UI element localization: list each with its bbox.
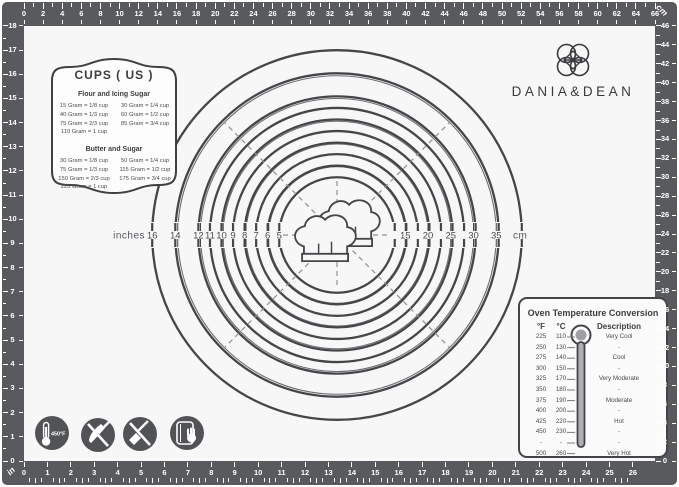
ruler-tick xyxy=(19,74,24,75)
description-value: Hot xyxy=(578,417,660,427)
ruler-tick xyxy=(263,3,264,7)
ruler-tick xyxy=(656,338,660,339)
cups-line: 110 Gram = 1 cup xyxy=(53,128,115,137)
ruler-tick xyxy=(3,352,6,353)
ruler-tick xyxy=(111,478,112,483)
ruler-tick xyxy=(205,478,206,483)
ruler-tick xyxy=(672,442,676,443)
ruler-tick xyxy=(621,478,622,484)
ruler-tick xyxy=(196,20,197,24)
ruler-tick xyxy=(656,432,660,433)
ruler-tick xyxy=(463,20,464,24)
ruler-label: 24 xyxy=(245,10,261,18)
ruler-label: 40 xyxy=(659,79,672,87)
ruler-tick xyxy=(482,20,483,24)
ruler-tick xyxy=(451,478,452,483)
ruler-label: 17 xyxy=(414,469,430,477)
ruler-tick xyxy=(574,478,575,484)
ruler-label: 42 xyxy=(659,60,672,68)
ruler-tick xyxy=(672,158,676,159)
ruler-tick xyxy=(62,20,63,24)
cups-line: 115 Gram = 1/2 cup xyxy=(114,166,176,175)
ruler-label: 15 xyxy=(7,94,18,102)
ruler-tick xyxy=(157,20,158,24)
ruler-tick xyxy=(19,98,24,99)
ruler-tick xyxy=(19,146,24,147)
ruler-label: 14 xyxy=(344,469,360,477)
ruler-label: 12 xyxy=(297,469,313,477)
description-value: Very Cool xyxy=(578,332,660,342)
ruler-label: 36 xyxy=(360,10,376,18)
ruler-tick xyxy=(656,205,660,206)
ruler-tick xyxy=(656,54,660,55)
ruler-label: 14 xyxy=(659,325,672,333)
ruler-tick xyxy=(81,20,82,24)
ruler-label: 12 xyxy=(659,344,672,352)
ruler-tick xyxy=(672,385,676,386)
ruler-label: 21 xyxy=(508,469,524,477)
ruler-label: 16 xyxy=(391,469,407,477)
ruler-tick xyxy=(176,478,177,484)
ruler-tick xyxy=(656,319,660,320)
ruler-tick xyxy=(252,478,253,483)
ruler-tick xyxy=(228,478,229,483)
ruler-label: 50 xyxy=(494,10,510,18)
cups-line: 75 Gram = 2/3 cup xyxy=(53,120,115,129)
ruler-tick xyxy=(19,461,24,462)
ruler-label: 32 xyxy=(322,10,338,18)
brand-name: DANIA&DEAN xyxy=(473,84,673,99)
ruler-tick xyxy=(19,436,24,437)
cups-line: 60 Gram = 1/2 cup xyxy=(114,111,176,120)
ruler-tick xyxy=(357,478,358,483)
ruler-tick xyxy=(33,3,34,7)
ruler-tick xyxy=(258,462,259,467)
ruler-tick xyxy=(457,478,458,484)
ruler-tick xyxy=(186,3,187,7)
cups-list: 30 Gram = 1/8 cup75 Gram = 1/3 cup150 Gr… xyxy=(53,157,115,192)
ruler-label: 1 xyxy=(39,469,55,477)
cups-line: 30 Gram = 1/8 cup xyxy=(53,157,115,166)
ruler-label: 20 xyxy=(659,268,672,276)
ruler-tick xyxy=(3,376,6,377)
ruler-tick xyxy=(70,462,71,467)
ruler-tick xyxy=(656,224,660,225)
ruler-tick xyxy=(3,158,6,159)
ruler-tick xyxy=(480,478,481,484)
ruler-label: 26 xyxy=(625,469,641,477)
description-value: Cool xyxy=(578,353,660,363)
description-value: - xyxy=(578,427,660,437)
celsius-value: 190 xyxy=(549,396,573,406)
ruler-tick xyxy=(672,44,676,45)
ruler-tick xyxy=(672,177,676,178)
ruler-tick xyxy=(656,356,660,357)
ruler-tick xyxy=(635,20,636,24)
ruler-tick xyxy=(672,234,676,235)
ruler-tick xyxy=(246,478,247,484)
ruler-label: 38 xyxy=(659,98,672,106)
ruler-label: 40 xyxy=(398,10,414,18)
ruler-tick xyxy=(299,478,300,483)
ruler-tick xyxy=(100,478,101,483)
ruler-tick xyxy=(243,3,244,7)
ruler-label: 0 xyxy=(7,457,18,465)
ruler-label: 64 xyxy=(628,10,644,18)
ruler-tick xyxy=(322,478,323,483)
celsius-value: 130 xyxy=(549,343,573,353)
ruler-tick xyxy=(672,139,676,140)
description-value: - xyxy=(578,343,660,353)
ruler-tick xyxy=(627,478,628,483)
pastry-mat-product-image: 1614121110987651520253035inchescm CUPS (… xyxy=(0,0,679,487)
ruler-tick xyxy=(672,271,676,272)
ruler-label: 44 xyxy=(659,41,672,49)
cups-line: 150 Gram = 2/3 cup xyxy=(53,175,115,184)
cm-diameter-label: 15 xyxy=(400,231,411,242)
brand-logo: DANIA&DEAN xyxy=(473,32,673,102)
ruler-label: 22 xyxy=(226,10,242,18)
ruler-tick xyxy=(19,122,24,123)
ruler-tick xyxy=(3,424,6,425)
ruler-tick xyxy=(215,20,216,24)
ruler-tick xyxy=(167,3,168,7)
ruler-label: 6 xyxy=(157,469,173,477)
ruler-label: 14 xyxy=(7,119,18,127)
ruler-tick xyxy=(3,38,6,39)
cups-title: CUPS ( US ) xyxy=(46,68,182,82)
ruler-label: 18 xyxy=(659,287,672,295)
cups-line: 175 Gram = 3/4 cup xyxy=(114,175,176,184)
celsius-value: 230 xyxy=(549,427,573,437)
ruler-tick xyxy=(310,478,311,483)
ruler-label: 30 xyxy=(659,173,672,181)
ruler-tick xyxy=(656,186,660,187)
ruler-tick xyxy=(253,20,254,24)
ruler-tick xyxy=(59,478,60,484)
ruler-tick xyxy=(123,478,124,483)
ruler-label: 32 xyxy=(659,154,672,162)
ruler-tick xyxy=(509,478,510,483)
ruler-label: 18 xyxy=(438,469,454,477)
ruler-tick xyxy=(656,413,660,414)
ruler-tick xyxy=(3,448,6,449)
ruler-tick xyxy=(439,478,440,483)
ruler-label: 42 xyxy=(418,10,434,18)
ruler-tick xyxy=(656,394,660,395)
ruler-tick xyxy=(349,20,350,24)
ruler-label: 56 xyxy=(551,10,567,18)
cups-conversion-box: CUPS ( US ) Flour and Icing Sugar 15 Gra… xyxy=(46,55,182,197)
ruler-label: 10 xyxy=(112,10,128,18)
ruler-tick xyxy=(94,462,95,467)
cups-line: 30 Gram = 1/4 cup xyxy=(114,102,176,111)
ruler-tick xyxy=(562,462,563,467)
ruler-tick xyxy=(556,478,557,483)
ruler-label: 54 xyxy=(532,10,548,18)
ruler-tick xyxy=(158,478,159,483)
ruler-tick xyxy=(3,279,6,280)
ruler-tick xyxy=(19,388,24,389)
ruler-tick xyxy=(269,478,270,484)
ruler-tick xyxy=(3,183,6,184)
ruler-tick xyxy=(351,462,352,467)
ruler-label: 28 xyxy=(284,10,300,18)
ruler-tick xyxy=(422,462,423,467)
ruler-tick xyxy=(320,3,321,7)
ruler-tick xyxy=(672,63,676,64)
ruler-tick xyxy=(3,110,6,111)
ruler-label: 22 xyxy=(531,469,547,477)
ruler-tick xyxy=(603,478,604,483)
ruler-tick xyxy=(511,3,512,7)
ruler-tick xyxy=(110,3,111,7)
ruler-tick xyxy=(375,462,376,467)
ruler-tick xyxy=(656,130,660,131)
ruler-tick xyxy=(76,478,77,483)
ruler-tick xyxy=(135,478,136,483)
ruler-label: 6 xyxy=(659,400,672,408)
ruler-label: 3 xyxy=(86,469,102,477)
celsius-value: 150 xyxy=(549,364,573,374)
ruler-label: 2 xyxy=(35,10,51,18)
ruler-tick xyxy=(655,20,656,24)
ruler-tick xyxy=(672,404,676,405)
cups-line: 50 Gram = 1/4 cup xyxy=(114,157,176,166)
celsius-value: 140 xyxy=(549,353,573,363)
ruler-tick xyxy=(609,462,610,467)
ruler-label: 8 xyxy=(7,264,18,272)
ruler-tick xyxy=(568,478,569,483)
ruler-tick xyxy=(368,20,369,24)
ruler-label: 46 xyxy=(659,22,672,30)
ruler-tick xyxy=(398,462,399,467)
celsius-value: 170 xyxy=(549,374,573,384)
ruler-tick xyxy=(444,20,445,24)
ruler-label: 5 xyxy=(133,469,149,477)
ruler-tick xyxy=(415,3,416,7)
ruler-tick xyxy=(427,478,428,483)
ruler-tick xyxy=(182,478,183,483)
ruler-tick xyxy=(264,478,265,483)
ruler-label: 46 xyxy=(456,10,472,18)
ruler-tick xyxy=(672,101,676,102)
ruler-tick xyxy=(19,195,24,196)
ruler-tick xyxy=(3,86,6,87)
ruler-label: 4 xyxy=(7,360,18,368)
ruler-tick xyxy=(293,478,294,484)
inch-diameter-label: 6 xyxy=(265,231,270,242)
ruler-label: 12 xyxy=(131,10,147,18)
ruler-tick xyxy=(387,20,388,24)
ruler-label: 7 xyxy=(7,288,18,296)
ruler-tick xyxy=(234,462,235,467)
ruler-tick xyxy=(3,231,6,232)
ruler-label: 4 xyxy=(659,419,672,427)
ruler-label: 11 xyxy=(7,191,18,199)
ruler-tick xyxy=(193,478,194,483)
ruler-tick xyxy=(615,478,616,483)
description-value: - xyxy=(578,385,660,395)
cups-line: 40 Gram = 1/3 cup xyxy=(53,111,115,120)
ruler-tick xyxy=(597,478,598,484)
ruler-tick xyxy=(224,3,225,7)
ruler-tick xyxy=(19,291,24,292)
ruler-tick xyxy=(656,243,660,244)
ruler-tick xyxy=(310,20,311,24)
ruler-tick xyxy=(117,462,118,467)
ruler-label: 20 xyxy=(207,10,223,18)
inch-diameter-label: 12 xyxy=(193,231,204,242)
ruler-tick xyxy=(597,20,598,24)
ruler-tick xyxy=(334,478,335,483)
ruler-tick xyxy=(539,462,540,467)
inch-diameter-label: 7 xyxy=(254,231,259,242)
ruler-tick xyxy=(3,62,6,63)
ruler-tick xyxy=(559,20,560,24)
ruler-label: 13 xyxy=(320,469,336,477)
ruler-tick xyxy=(29,478,30,483)
ruler-tick xyxy=(607,3,608,7)
ruler-tick xyxy=(53,478,54,483)
ruler-tick xyxy=(672,120,676,121)
no-knife-icon xyxy=(78,415,118,455)
celsius-value: - xyxy=(549,438,573,448)
ruler-tick xyxy=(435,3,436,7)
ruler-label: 1 xyxy=(7,433,18,441)
ruler-label: 0 xyxy=(16,10,32,18)
ruler-tick xyxy=(381,478,382,483)
cups-list: 50 Gram = 1/4 cup115 Gram = 1/2 cup175 G… xyxy=(114,157,176,183)
ruler-tick xyxy=(369,478,370,483)
mat-surface: 1614121110987651520253035inchescm CUPS (… xyxy=(24,26,655,461)
ruler-tick xyxy=(672,423,676,424)
ruler-label: 58 xyxy=(571,10,587,18)
ruler-tick xyxy=(43,20,44,24)
inch-diameter-label: 11 xyxy=(205,231,215,242)
ruler-tick xyxy=(19,340,24,341)
cups-list: 30 Gram = 1/4 cup60 Gram = 1/2 cup85 Gra… xyxy=(114,102,176,128)
ruler-tick xyxy=(504,478,505,484)
ruler-tick xyxy=(656,35,660,36)
ruler-tick xyxy=(626,3,627,7)
ruler-tick xyxy=(632,462,633,467)
ruler-label: 6 xyxy=(7,312,18,320)
ruler-label: 4 xyxy=(54,10,70,18)
ruler-tick xyxy=(90,3,91,7)
ruler-tick xyxy=(578,20,579,24)
wipe-clean-icon xyxy=(167,413,207,453)
ruler-tick xyxy=(146,478,147,483)
ruler-tick xyxy=(463,478,464,483)
ruler-tick xyxy=(340,478,341,484)
ruler-tick xyxy=(396,3,397,7)
description-value: - xyxy=(578,438,660,448)
ruler-label: 0 xyxy=(659,457,672,465)
ruler-tick xyxy=(129,3,130,7)
cm-unit-label: cm xyxy=(513,231,527,242)
ruler-tick xyxy=(492,3,493,7)
ruler-tick xyxy=(468,462,469,467)
ruler-tick xyxy=(502,20,503,24)
cm-diameter-label: 30 xyxy=(468,231,479,242)
ruler-tick xyxy=(19,170,24,171)
ruler-tick xyxy=(377,3,378,7)
ruler-tick xyxy=(656,262,660,263)
ruler-tick xyxy=(363,478,364,484)
ruler-tick xyxy=(217,478,218,483)
ruler-label: 16 xyxy=(169,10,185,18)
oven-temperature-box: Oven Temperature Conversion °F °C Descri… xyxy=(518,297,668,458)
ruler-tick xyxy=(19,267,24,268)
ruler-tick xyxy=(3,207,6,208)
ruler-label: 26 xyxy=(659,211,672,219)
ruler-tick xyxy=(586,462,587,467)
cups-list: 15 Gram = 1/8 cup40 Gram = 1/3 cup75 Gra… xyxy=(53,102,115,137)
ruler-tick xyxy=(19,219,24,220)
ruler-tick xyxy=(515,462,516,467)
inch-diameter-label: 14 xyxy=(170,231,181,242)
ruler-tick xyxy=(521,478,522,483)
ruler-tick xyxy=(138,20,139,24)
heat-resistant-icon: 450°F xyxy=(32,413,72,453)
ruler-tick xyxy=(406,20,407,24)
ruler-label: 4 xyxy=(110,469,126,477)
ruler-label: 22 xyxy=(659,249,672,257)
ruler-tick xyxy=(287,478,288,483)
ruler-tick xyxy=(425,20,426,24)
ruler-tick xyxy=(656,300,660,301)
ruler-tick xyxy=(205,3,206,7)
ruler-label: 9 xyxy=(7,239,18,247)
cups-line: 75 Gram = 1/3 cup xyxy=(53,166,115,175)
ruler-tick xyxy=(672,366,676,367)
cm-diameter-label: 25 xyxy=(445,231,456,242)
ruler-tick xyxy=(234,20,235,24)
celsius-value: 180 xyxy=(549,385,573,395)
ruler-tick xyxy=(645,3,646,7)
ruler-tick xyxy=(580,478,581,483)
ruler-tick xyxy=(41,478,42,483)
ruler-tick xyxy=(35,478,36,484)
ruler-tick xyxy=(88,478,89,483)
cm-diameter-label: 35 xyxy=(491,231,502,242)
ruler-label: 23 xyxy=(555,469,571,477)
ruler-tick xyxy=(3,134,6,135)
ruler-label: 0 xyxy=(16,469,32,477)
ruler-tick xyxy=(533,478,534,483)
ruler-tick xyxy=(100,20,101,24)
ruler-tick xyxy=(445,462,446,467)
ruler-label: 18 xyxy=(188,10,204,18)
ruler-tick xyxy=(24,20,25,24)
cm-diameter-label: 20 xyxy=(423,231,434,242)
ruler-label: 30 xyxy=(303,10,319,18)
ruler-tick xyxy=(19,315,24,316)
ruler-tick xyxy=(568,3,569,7)
ruler-tick xyxy=(656,148,660,149)
ruler-label: 8 xyxy=(659,381,672,389)
ruler-label: 11 xyxy=(274,469,290,477)
ruler-tick xyxy=(82,478,83,484)
ruler-label: 60 xyxy=(590,10,606,18)
ruler-label: 16 xyxy=(659,306,672,314)
inch-diameter-label: 9 xyxy=(230,231,235,242)
description-value: - xyxy=(578,406,660,416)
ruler-tick xyxy=(656,451,660,452)
ruler-tick xyxy=(281,462,282,467)
ruler-tick xyxy=(19,364,24,365)
